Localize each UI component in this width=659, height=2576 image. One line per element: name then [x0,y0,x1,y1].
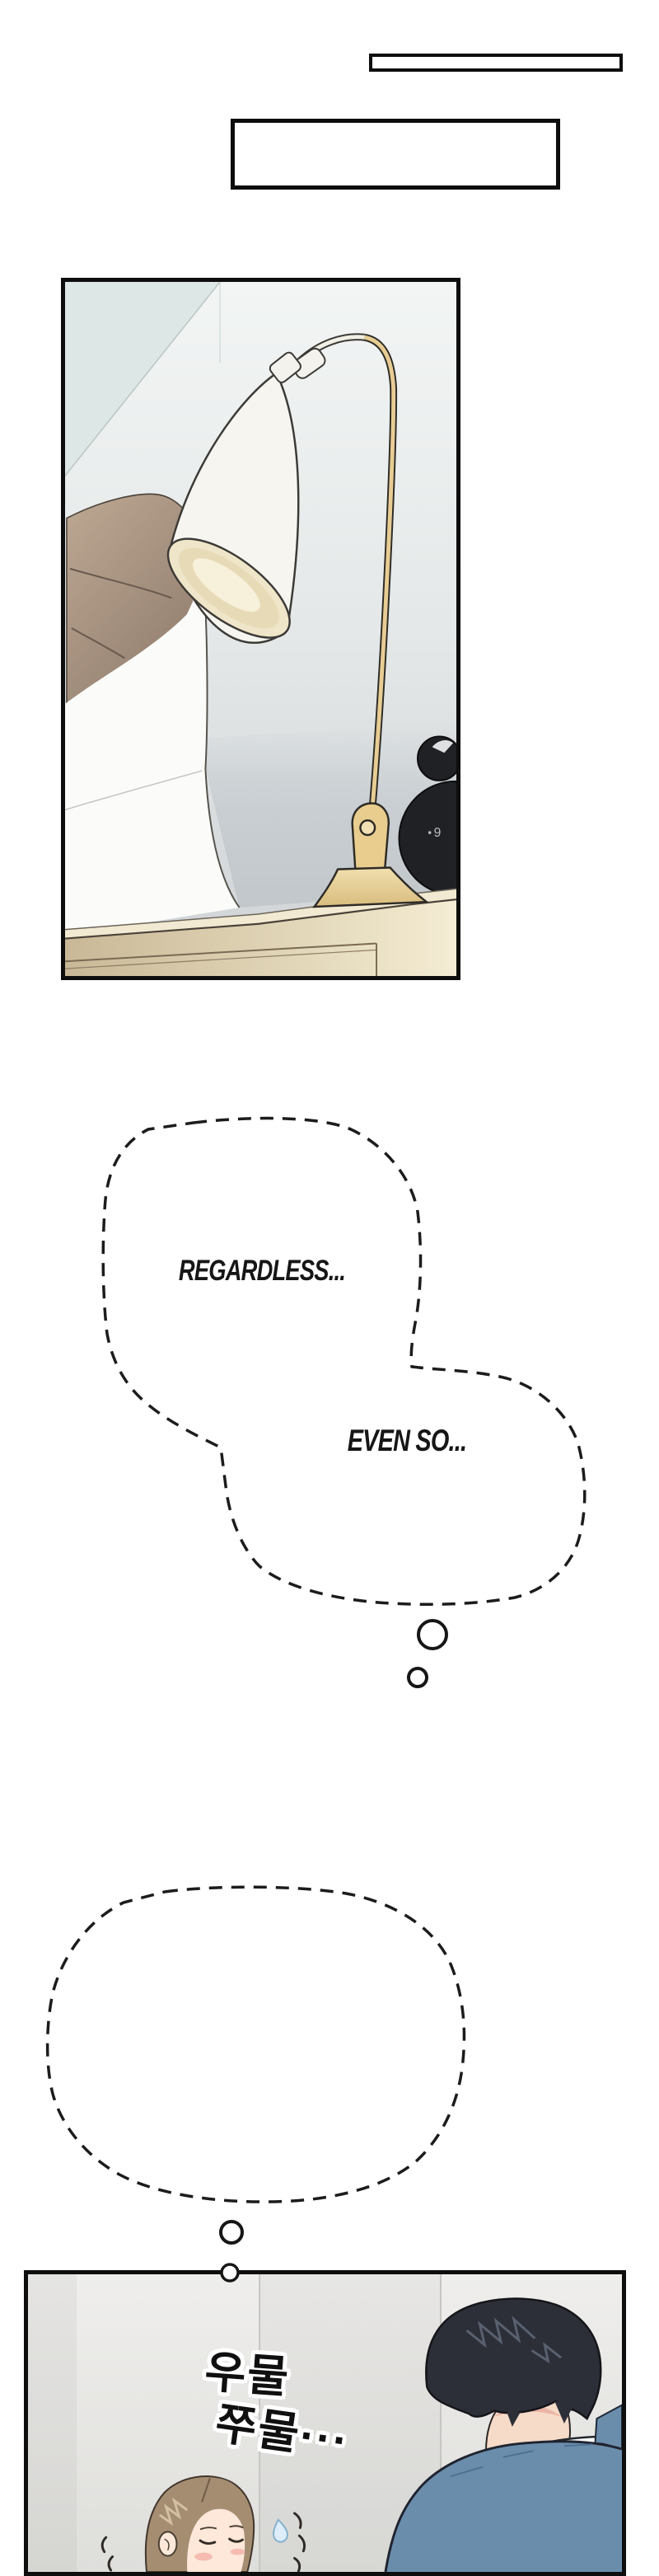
thought-bubble-1-outline [103,1119,585,1605]
lamp-joint [353,803,389,872]
webtoon-page: 9 [0,0,659,2576]
thought-trail-circle-large [221,2222,242,2243]
man-hair [426,2299,601,2419]
thought-bubble-2 [33,1871,494,2300]
panel-lamp-scene: 9 [61,278,460,980]
lamp-scene-art: 9 [65,282,456,976]
blush-right [231,2549,245,2555]
caption-box-large [231,119,560,190]
caption-box-small [369,54,623,72]
bubble1-text-regardless: REGARDLESS... [179,1255,345,1288]
blush-left [194,2553,213,2561]
woman-ear [159,2531,177,2555]
thought-bubble-2-outline [48,1887,465,2202]
thought-bubble-1 [82,1105,610,1698]
thought-trail-circle-small [409,1668,427,1687]
bubble1-text-even-so: EVEN SO... [348,1424,467,1458]
thought-trail-circle-large [418,1621,446,1649]
clock-digit: 9 [434,826,442,840]
thought-trail-circle-small [222,2264,238,2281]
